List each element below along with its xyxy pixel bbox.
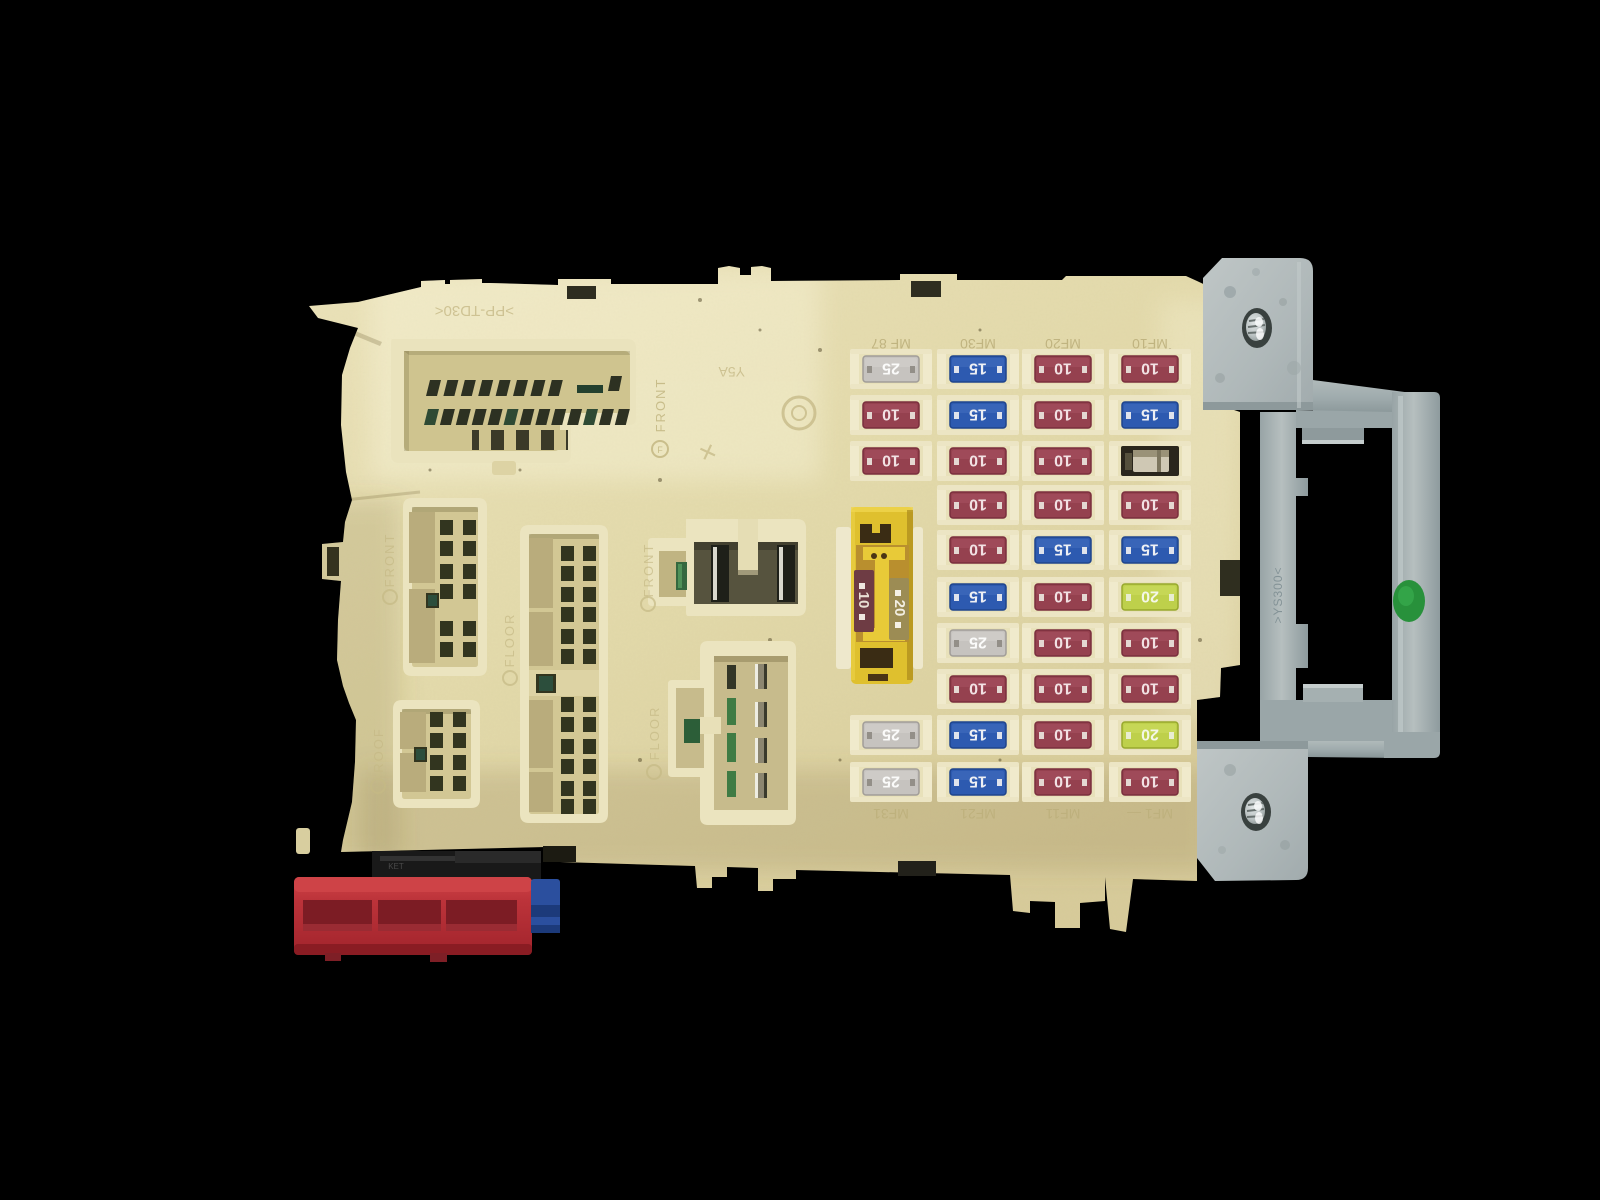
svg-text:15: 15 bbox=[969, 588, 987, 605]
svg-text:10: 10 bbox=[855, 592, 872, 609]
svg-text:10: 10 bbox=[1054, 360, 1072, 377]
svg-text:10: 10 bbox=[882, 452, 900, 469]
svg-text:10: 10 bbox=[1054, 452, 1072, 469]
svg-text:FRONT: FRONT bbox=[653, 378, 668, 433]
svg-text:10: 10 bbox=[1141, 773, 1159, 790]
svg-text:MF21: MF21 bbox=[960, 806, 996, 822]
svg-text:10: 10 bbox=[1054, 773, 1072, 790]
svg-text:15: 15 bbox=[1141, 406, 1159, 423]
svg-text:MF 87: MF 87 bbox=[871, 336, 911, 352]
svg-text:25: 25 bbox=[882, 773, 900, 790]
svg-text:15: 15 bbox=[969, 406, 987, 423]
svg-text:FRONT: FRONT bbox=[382, 533, 397, 588]
svg-text:10: 10 bbox=[1141, 496, 1159, 513]
svg-text:25: 25 bbox=[969, 634, 987, 651]
svg-text:10: 10 bbox=[969, 496, 987, 513]
svg-text:15: 15 bbox=[969, 773, 987, 790]
svg-text:10: 10 bbox=[969, 452, 987, 469]
svg-text:MF31: MF31 bbox=[873, 806, 909, 822]
svg-text:MF20: MF20 bbox=[1045, 336, 1081, 352]
svg-text:10: 10 bbox=[969, 541, 987, 558]
svg-text:MF10: MF10 bbox=[1132, 336, 1168, 352]
svg-text:15: 15 bbox=[969, 726, 987, 743]
svg-text:F: F bbox=[657, 445, 663, 455]
svg-text:10: 10 bbox=[1141, 360, 1159, 377]
svg-text:MF30: MF30 bbox=[960, 336, 996, 352]
svg-text:15: 15 bbox=[1141, 541, 1159, 558]
svg-text:20: 20 bbox=[1141, 726, 1159, 743]
svg-text:20: 20 bbox=[1141, 588, 1159, 605]
svg-text:>YS300<: >YS300< bbox=[1271, 566, 1285, 623]
svg-text:10: 10 bbox=[1141, 634, 1159, 651]
svg-text:25: 25 bbox=[882, 360, 900, 377]
svg-text:FRONT: FRONT bbox=[641, 543, 656, 598]
svg-text:10: 10 bbox=[1054, 406, 1072, 423]
svg-text:FLOOR: FLOOR bbox=[502, 613, 517, 668]
svg-text:10: 10 bbox=[1054, 726, 1072, 743]
svg-text:15: 15 bbox=[969, 360, 987, 377]
svg-text:10: 10 bbox=[1054, 680, 1072, 697]
svg-text:10: 10 bbox=[1054, 634, 1072, 651]
svg-text:Y5A: Y5A bbox=[718, 364, 745, 380]
svg-text:10: 10 bbox=[969, 680, 987, 697]
svg-text:KET: KET bbox=[388, 862, 404, 871]
svg-text:MF1 —: MF1 — bbox=[1127, 806, 1173, 822]
svg-text:10: 10 bbox=[882, 406, 900, 423]
svg-text:25: 25 bbox=[882, 726, 900, 743]
svg-text:10: 10 bbox=[1054, 496, 1072, 513]
svg-text:15: 15 bbox=[1054, 541, 1072, 558]
svg-text:FLOOR: FLOOR bbox=[647, 706, 662, 761]
svg-text:10: 10 bbox=[1141, 680, 1159, 697]
svg-text:10: 10 bbox=[1054, 588, 1072, 605]
svg-text:20: 20 bbox=[891, 600, 908, 617]
svg-text:MF11: MF11 bbox=[1045, 806, 1080, 822]
svg-text:>PP-TD30<: >PP-TD30< bbox=[435, 302, 514, 319]
svg-text:ROOF: ROOF bbox=[371, 727, 386, 773]
